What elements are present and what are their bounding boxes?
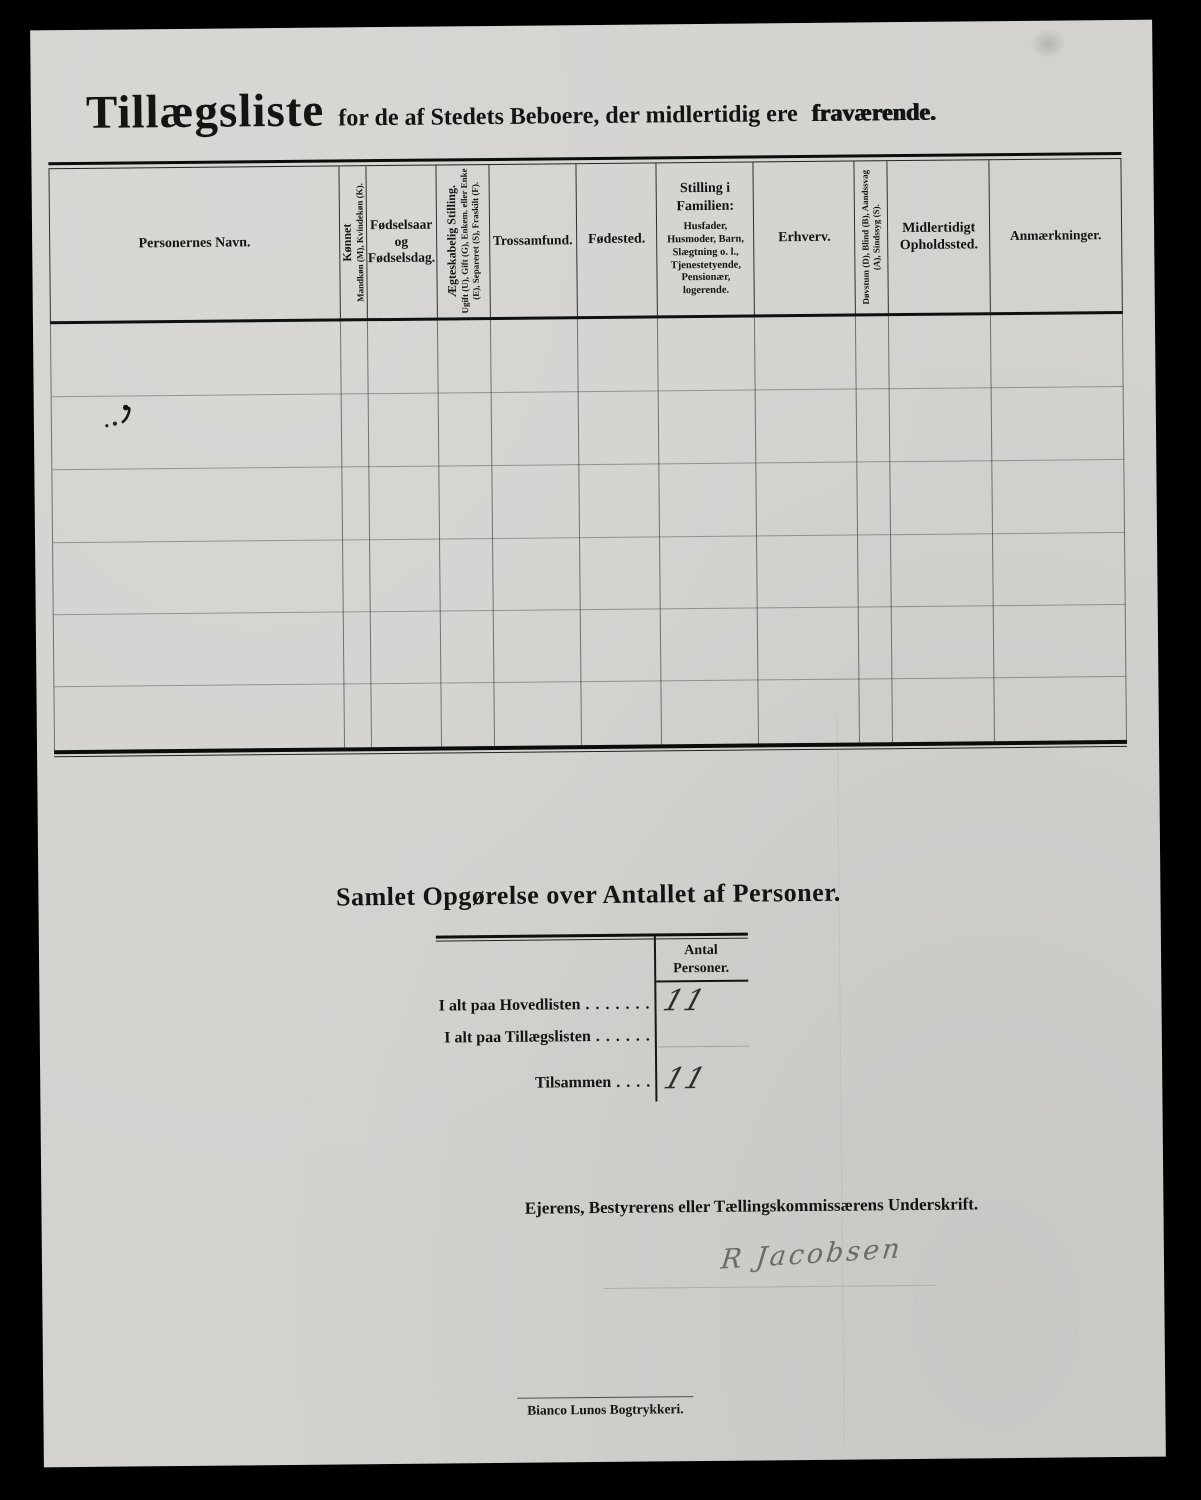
ink-blot (102, 401, 136, 431)
column-header-foedested: Fødested. (576, 163, 658, 316)
paper-smudge (1030, 28, 1066, 58)
column-header-doevstum: Døvstum (D), Blind (B), Aandssvag (A), S… (855, 161, 889, 313)
dot-leader: . . . . . . (591, 1028, 651, 1046)
column-header-label: Fødested. (588, 231, 645, 249)
column-header-aegteskabelig-stilling: Ægteskabelig Stilling. Ugift (U), Gift (… (436, 165, 490, 318)
summary-value-tilsammen: 11 (660, 1061, 712, 1095)
column-header-stilling-i-familien: Stilling i Familien: Husfader, Husmoder,… (657, 162, 755, 315)
summary-table: Antal Personer. I alt paa Hovedlisten . … (436, 933, 750, 1112)
summary-row-label: Tilsammen (535, 1074, 611, 1092)
title-main: Tillægsliste (86, 84, 325, 140)
column-header-label: Trossamfund. (493, 232, 573, 250)
scanned-census-page: Tillægsliste for de af Stedets Beboere, … (30, 20, 1166, 1468)
column-header-midlertidigt-opholdssted: Midlertidigt Opholdssted. (888, 160, 991, 313)
column-header-label: Døvstum (D), Blind (B), Aandssvag (A), S… (860, 163, 883, 311)
summary-row-tillaegslisten: I alt paa Tillægslisten . . . . . . (437, 1028, 651, 1048)
column-header-label: Fødselsaar og Fødselsdag. (368, 216, 436, 267)
column-header-sublabel: Husfader, Husmoder, Barn, Slægtning o. l… (659, 221, 752, 299)
summary-column-header: Antal Personer. (656, 942, 746, 979)
column-header-label: Kønnet (340, 168, 355, 316)
paper-fold-line (837, 713, 845, 1443)
title-subtitle: for de af Stedets Beboere, der midlertid… (338, 101, 798, 132)
summary-row-tilsammen: Tilsammen . . . . (437, 1074, 651, 1094)
column-header-label: Anmærkninger. (1010, 227, 1102, 245)
column-header-anmaerkninger: Anmærkninger. (990, 159, 1123, 312)
column-header-koennet: Kønnet Mandkøn (M), Kvindekøn (K). (339, 166, 367, 318)
signature-caption: Ejerens, Bestyrerens eller Tællingskommi… (451, 1194, 1051, 1220)
signature-handwriting: R Jacobsen (660, 1230, 963, 1280)
summary-row-label: I alt paa Tillægslisten (444, 1028, 591, 1046)
printer-rule (517, 1396, 693, 1399)
vertical-header: Ægteskabelig Stilling. Ugift (U), Gift (… (444, 167, 481, 315)
summary-value-hovedlisten: 11 (659, 983, 711, 1017)
printer-imprint: Bianco Lunos Bogtrykkeri. (475, 1401, 735, 1419)
column-header-trossamfund: Trossamfund. (489, 164, 577, 317)
column-header-personernes-navn: Personernes Navn. (49, 166, 340, 321)
column-header-sublabel: Mandkøn (M), Kvindekøn (K). (354, 168, 366, 316)
title-emphasis: fraværende. (812, 100, 936, 128)
column-header-foedselsaar: Fødselsaar og Fødselsdag. (366, 166, 437, 319)
vertical-header: Døvstum (D), Blind (B), Aandssvag (A), S… (860, 163, 883, 311)
column-header-label: Erhverv. (778, 229, 831, 247)
summary-top-rule-thin (436, 938, 748, 942)
summary-row-label: I alt paa Hovedlisten (439, 996, 581, 1014)
column-header-label: Stilling i Familien: (659, 180, 751, 216)
signature-line (604, 1285, 936, 1289)
column-header-label: Ægteskabelig Stilling. (444, 167, 459, 315)
summary-row-divider (657, 1046, 749, 1048)
column-header-erhverv: Erhverv. (754, 162, 856, 315)
table-header-row: Personernes Navn. Kønnet Mandkøn (M), Kv… (48, 159, 1122, 324)
column-header-label: Personernes Navn. (138, 235, 250, 254)
column-header-sublabel: Ugift (U), Gift (G), Enkem. eller Enke (… (458, 167, 481, 315)
census-table: Personernes Navn. Kønnet Mandkøn (M), Kv… (48, 152, 1127, 757)
dot-leader: . . . . . . . (580, 996, 650, 1014)
summary-row-hovedlisten: I alt paa Hovedlisten . . . . . . . (436, 996, 650, 1016)
dot-leader: . . . . (611, 1074, 651, 1091)
document-title: Tillægsliste for de af Stedets Beboere, … (86, 76, 1116, 140)
column-header-label: Midlertidigt Opholdssted. (890, 219, 987, 255)
vertical-header: Kønnet Mandkøn (M), Kvindekøn (K). (340, 168, 366, 316)
summary-title: Samlet Opgørelse over Antallet af Person… (238, 877, 938, 914)
table-body (50, 314, 1127, 750)
